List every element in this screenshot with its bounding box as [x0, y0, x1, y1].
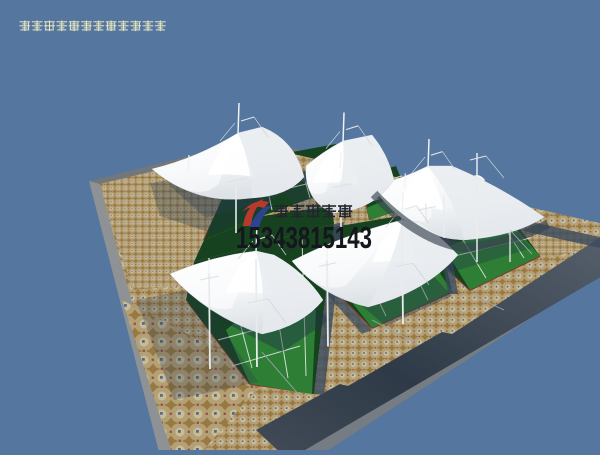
svg-text:15343815143: 15343815143: [236, 220, 372, 255]
